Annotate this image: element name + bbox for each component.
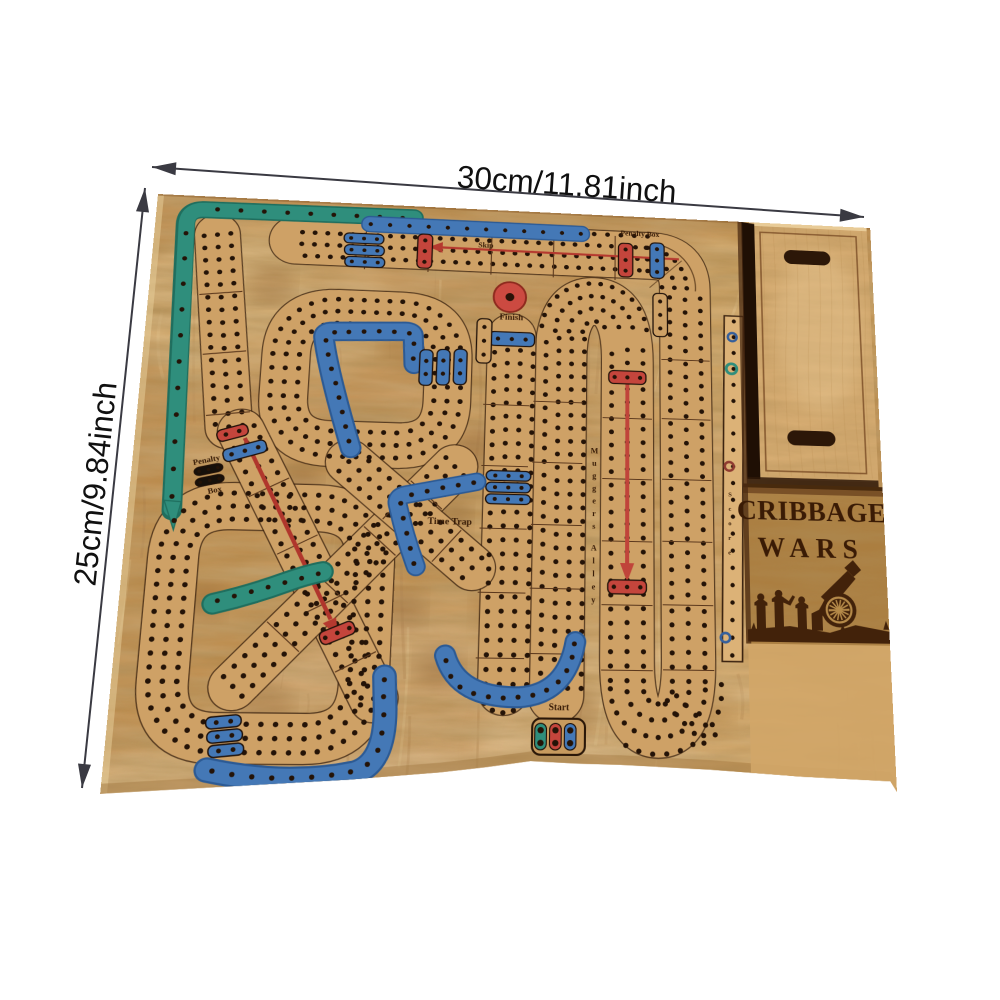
svg-text:30cm/11.81inch: 30cm/11.81inch [456,158,678,209]
svg-text:25cm/9.84inch: 25cm/9.84inch [66,380,123,588]
